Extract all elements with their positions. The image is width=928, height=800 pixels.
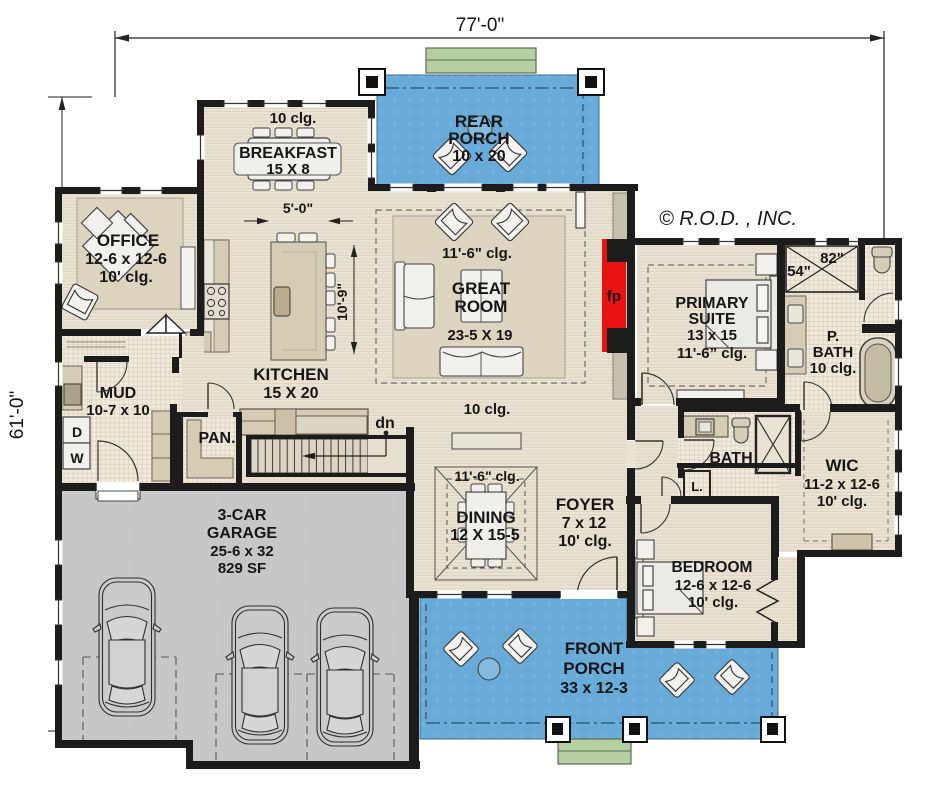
svg-text:3-CAR: 3-CAR xyxy=(218,507,267,524)
svg-text:PAN.: PAN. xyxy=(198,430,235,447)
svg-text:GREAT: GREAT xyxy=(452,279,511,298)
svg-text:10' clg.: 10' clg. xyxy=(99,269,153,286)
svg-text:23-5 X 19: 23-5 X 19 xyxy=(447,327,512,344)
svg-text:DINING: DINING xyxy=(456,508,516,527)
svg-text:10' clg.: 10' clg. xyxy=(688,594,738,611)
svg-text:10' clg.: 10' clg. xyxy=(558,533,612,550)
svg-text:12 X 15-5: 12 X 15-5 xyxy=(450,527,519,544)
svg-text:10 clg.: 10 clg. xyxy=(270,110,317,127)
svg-text:15 X 20: 15 X 20 xyxy=(263,385,318,402)
svg-text:10'-9": 10'-9" xyxy=(334,283,350,321)
svg-text:FOYER: FOYER xyxy=(556,495,615,514)
svg-text:10 clg.: 10 clg. xyxy=(464,401,511,418)
svg-text:W: W xyxy=(70,450,84,466)
svg-text:82": 82" xyxy=(820,250,844,267)
svg-text:10 x 20: 10 x 20 xyxy=(452,148,505,165)
svg-text:33 x 12-3: 33 x 12-3 xyxy=(560,680,628,697)
svg-text:BEDROOM: BEDROOM xyxy=(672,559,753,576)
svg-text:SUITE: SUITE xyxy=(688,311,735,328)
svg-text:PORCH: PORCH xyxy=(448,129,509,148)
svg-text:7 x 12: 7 x 12 xyxy=(562,515,607,532)
svg-text:© R.O.D. , INC.: © R.O.D. , INC. xyxy=(659,208,797,230)
svg-text:54": 54" xyxy=(787,263,811,280)
svg-text:11'-6" clg.: 11'-6" clg. xyxy=(454,468,519,484)
svg-text:13 x 15: 13 x 15 xyxy=(687,327,737,344)
svg-text:11'-6" clg.: 11'-6" clg. xyxy=(442,245,512,262)
svg-text:77'-0": 77'-0" xyxy=(456,15,504,36)
svg-text:OFFICE: OFFICE xyxy=(97,231,159,250)
svg-text:11'-6” clg.: 11'-6” clg. xyxy=(677,345,747,362)
svg-text:GARAGE: GARAGE xyxy=(207,525,278,542)
svg-text:BREAKFAST: BREAKFAST xyxy=(239,145,337,162)
svg-text:L.: L. xyxy=(691,479,703,494)
svg-text:12-6 x 12-6: 12-6 x 12-6 xyxy=(675,577,752,594)
svg-text:25-6 x 32: 25-6 x 32 xyxy=(210,543,273,560)
svg-text:MUD: MUD xyxy=(100,385,136,402)
svg-text:KITCHEN: KITCHEN xyxy=(253,365,329,384)
svg-text:829 SF: 829 SF xyxy=(218,560,266,577)
svg-text:11-2 x 12-6: 11-2 x 12-6 xyxy=(804,476,880,493)
svg-text:D: D xyxy=(72,424,82,440)
svg-text:12-6 x 12-6: 12-6 x 12-6 xyxy=(85,251,167,268)
svg-text:5'-0": 5'-0" xyxy=(283,200,313,216)
svg-text:15 X 8: 15 X 8 xyxy=(266,161,309,178)
svg-text:P.: P. xyxy=(827,328,839,345)
svg-text:FRONT: FRONT xyxy=(565,639,624,658)
svg-text:ROOM: ROOM xyxy=(455,297,508,316)
svg-text:PRIMARY: PRIMARY xyxy=(675,295,749,312)
svg-text:61'-0": 61'-0" xyxy=(7,391,28,439)
svg-text:BATH: BATH xyxy=(813,344,854,361)
svg-text:10' clg.: 10' clg. xyxy=(817,493,867,510)
svg-text:10 clg.: 10 clg. xyxy=(810,360,857,377)
svg-text:PORCH: PORCH xyxy=(563,659,624,678)
svg-text:dn: dn xyxy=(375,415,395,432)
svg-text:fp: fp xyxy=(607,288,621,305)
svg-text:10-7 x 10: 10-7 x 10 xyxy=(86,402,149,419)
svg-text:WIC: WIC xyxy=(825,456,858,475)
